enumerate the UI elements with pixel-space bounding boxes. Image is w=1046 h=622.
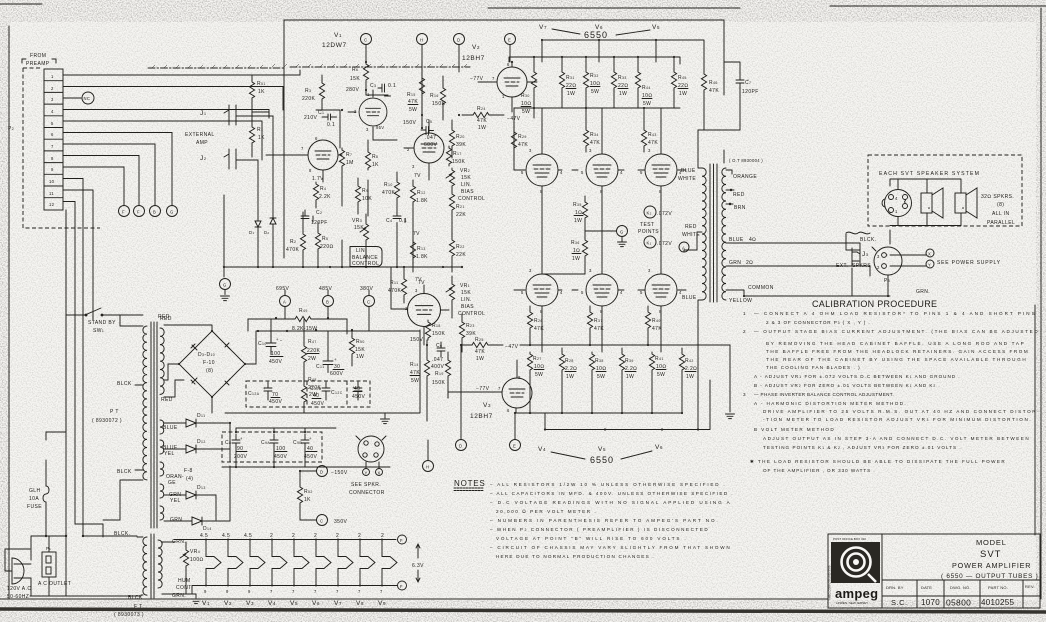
svg-text:−77V: −77V [470,76,484,82]
svg-text:V4: V4 [538,446,546,453]
svg-text:.047: .047 [432,357,443,363]
svg-text:05800: 05800 [946,598,971,608]
svg-text:7V: 7V [414,173,421,179]
svg-text:1K: 1K [304,497,311,503]
svg-text:9: 9 [51,167,54,172]
svg-text:470K: 470K [388,288,402,294]
svg-text:600V: 600V [424,142,438,148]
svg-text:8.2K-15W: 8.2K-15W [292,326,317,332]
svg-text:V3: V3 [246,600,254,607]
svg-text:6.3V: 6.3V [412,563,424,569]
svg-text:47K: 47K [594,326,604,332]
svg-text:(8): (8) [206,368,213,374]
svg-text:RED: RED [160,316,172,322]
svg-text:P T: P T [110,409,119,415]
svg-text:BRN: BRN [734,205,746,211]
svg-text:V1: V1 [334,32,342,39]
svg-text:1: 1 [367,92,370,97]
svg-text:10A: 10A [29,496,39,502]
svg-text:47K: 47K [534,326,544,332]
svg-text:1W: 1W [567,91,575,97]
svg-text:F T: F T [134,604,143,610]
svg-text:NC: NC [84,96,91,101]
svg-text:450V: 450V [304,454,318,460]
svg-text:ADJUST OUTPUT AS IN STEP: ADJUST OUTPUT AS IN STEP 3-A AND CONNECT… [763,436,1029,441]
svg-text:— CONNECT A 4 OHM LOAD RES: — CONNECT A 4 OHM LOAD RESISTOR* TO PINS… [754,311,1035,316]
svg-text:J3: J3 [862,251,869,258]
svg-text:C: C [320,519,323,524]
svg-text:470K: 470K [382,190,396,196]
svg-text:DRN. BY: DRN. BY [886,585,904,590]
svg-text:B: B [153,210,156,215]
svg-text:-TION METER TO LOAD RESIST: -TION METER TO LOAD RESISTOR ADJUST VR3 … [763,417,1031,422]
svg-text:10K: 10K [362,196,372,202]
svg-text:REV.: REV. [1025,584,1035,589]
svg-text:5W: 5W [591,89,599,95]
svg-text:1.8K: 1.8K [416,198,428,204]
svg-text:6550: 6550 [590,455,614,465]
svg-text:5: 5 [640,290,643,295]
svg-text:F-8: F-8 [184,468,193,474]
svg-text:STAND BY: STAND BY [88,320,116,326]
svg-text:+: + [263,386,266,391]
svg-text:WHITE: WHITE [678,176,696,182]
svg-text:47K: 47K [648,140,658,146]
svg-text:7: 7 [292,589,295,594]
svg-text:2.2K: 2.2K [319,194,331,200]
svg-text:470K: 470K [286,247,300,253]
svg-text:V5: V5 [598,446,606,453]
svg-text:9: 9 [248,589,251,594]
svg-text:RED: RED [161,397,173,403]
svg-text:BLUE: BLUE [163,425,178,431]
svg-text:120PF: 120PF [742,89,759,95]
svg-text:D: D [457,38,460,43]
svg-text:50-60HZ: 50-60HZ [7,594,29,600]
svg-text:H: H [426,465,429,470]
svg-text:SEE SPKR.: SEE SPKR. [351,482,381,488]
svg-text:GE: GE [168,480,176,486]
svg-text:✱ THE LOAD RESISTOR SHOULD: ✱ THE LOAD RESISTOR SHOULD BE ABLE TO DI… [750,459,1005,464]
svg-text:GLH: GLH [29,488,40,494]
svg-text:2: 2 [270,533,273,539]
svg-text:15K: 15K [354,225,364,231]
svg-text:+: + [309,436,312,441]
svg-text:2: 2 [336,533,339,539]
svg-text:6: 6 [507,408,510,413]
svg-text:J2: J2 [200,155,207,162]
svg-text:1W: 1W [478,125,486,131]
svg-text:V3: V3 [483,402,491,409]
svg-text:7V: 7V [413,231,420,237]
svg-text:22K: 22K [456,252,466,258]
svg-text:2: 2 [381,533,384,539]
svg-text:5W: 5W [657,372,665,378]
svg-text:1W: 1W [356,354,364,360]
svg-text:95V: 95V [376,125,384,130]
svg-text:5W: 5W [643,101,651,107]
svg-text:4.5: 4.5 [200,533,208,539]
svg-text:2Ω: 2Ω [746,260,753,266]
svg-text:( 8930073 ): ( 8930073 ) [114,612,144,618]
svg-text:2: 2 [51,86,54,91]
svg-text:J1: J1 [200,110,207,117]
svg-text:G: G [170,210,174,215]
svg-text:LIN.: LIN. [461,297,472,303]
svg-text:AMEG CORP (201) 925-3700: AMEG CORP (201) 925-3700 [828,565,832,600]
svg-text:YEL: YEL [164,451,175,457]
svg-text:5W: 5W [522,109,530,115]
svg-text:D2: D2 [264,230,269,235]
svg-text:3: 3 [529,268,532,273]
svg-text:BY REMOVING THE HEAD CABIN: BY REMOVING THE HEAD CABINET BAFFLE. USE… [766,341,1024,346]
svg-text:1M: 1M [346,160,354,166]
svg-text:YELLOW: YELLOW [729,298,752,304]
svg-text:120PF: 120PF [311,220,328,226]
svg-text:5W: 5W [597,374,605,380]
svg-text:V6: V6 [312,600,320,607]
svg-text:10: 10 [49,179,55,184]
svg-text:BIAS: BIAS [461,189,474,195]
svg-text:S.C.: S.C. [891,598,908,607]
svg-text:COMMON: COMMON [748,285,774,291]
svg-text:SEE POWER SUPPLY: SEE POWER SUPPLY [937,260,1001,266]
svg-text:BLUE: BLUE [681,168,696,174]
svg-text:+: + [276,337,279,342]
svg-text:485V: 485V [319,286,333,292]
svg-text:1W: 1W [572,256,580,262]
svg-text:B - ADJUST VR2 FOR ZERO ±.: B - ADJUST VR2 FOR ZERO ±.01 VOLTS BETWE… [754,383,940,388]
svg-text:1070: 1070 [921,598,940,607]
svg-text:7: 7 [336,589,339,594]
svg-text:7: 7 [301,146,304,151]
svg-text:F: F [400,538,403,543]
svg-text:380V: 380V [360,286,374,292]
svg-text:3: 3 [743,392,746,397]
svg-text:5: 5 [51,121,54,126]
svg-text:220K: 220K [302,96,316,102]
svg-text:X: X [928,252,931,257]
svg-text:8: 8 [600,309,603,314]
svg-text:6: 6 [507,62,510,67]
svg-text:7: 7 [51,144,54,149]
svg-text:GRN: GRN [170,517,182,523]
svg-text:– WHEN P2 CONNECTOR ( PREA: – WHEN P2 CONNECTOR ( PREAMPLIFIER ) IS … [490,527,708,532]
svg-text:Y: Y [928,263,931,268]
svg-text:HUM: HUM [178,578,191,584]
svg-text:4.5: 4.5 [244,533,252,539]
svg-text:THE REAR OF THE CABINET B: THE REAR OF THE CABINET BY USING THE SPA… [766,357,1026,362]
svg-text:V2: V2 [224,600,232,607]
svg-text:1: 1 [502,94,505,99]
svg-text:450V: 450V [269,359,283,365]
svg-text:47K: 47K [590,140,600,146]
svg-text:450V: 450V [269,399,283,405]
svg-text:V1: V1 [202,600,210,607]
svg-text:– NUMBERS IN PARENTHESIS RE: – NUMBERS IN PARENTHESIS REFER TO AMPEG'… [490,518,718,523]
svg-text:EXT.: EXT. [836,263,848,269]
svg-text:D: D [459,444,462,449]
svg-text:4: 4 [560,170,563,175]
svg-text:V2: V2 [472,44,480,51]
svg-text:V4: V4 [268,600,276,607]
svg-text:47K: 47K [652,326,662,332]
svg-text:(4): (4) [186,476,193,482]
svg-text:1K: 1K [258,89,265,95]
svg-text:3: 3 [589,268,592,273]
svg-text:4010255: 4010255 [981,598,1014,607]
svg-text:15K: 15K [461,175,471,181]
svg-text:WHITE: WHITE [682,232,700,238]
svg-text:39K: 39K [456,142,466,148]
svg-text:8: 8 [51,156,54,161]
svg-text:0.1: 0.1 [327,122,335,128]
svg-text:FROM: FROM [30,53,46,59]
svg-text:120V A.C: 120V A.C [7,586,31,592]
svg-text:2 & 3 OF CONNECTOR P3 ( X: 2 & 3 OF CONNECTOR P3 ( X , Y ) . [766,320,870,325]
svg-text:K1: K1 [647,241,652,246]
svg-text:POWER AMPLIFIER: POWER AMPLIFIER [952,561,1031,570]
svg-text:B: B [326,300,329,305]
svg-text:.072V: .072V [657,211,672,217]
svg-text:YEL: YEL [170,498,181,504]
svg-text:( O.T 8930004 ): ( O.T 8930004 ) [729,158,763,163]
svg-text:LIN.: LIN. [461,182,472,188]
svg-text:8: 8 [540,309,543,314]
svg-text:OF THE AMPLIFIER , OR 330: OF THE AMPLIFIER , OR 330 WATTS . [763,468,875,473]
svg-text:F-10: F-10 [203,360,215,366]
svg-text:V7: V7 [334,600,342,607]
svg-text:3: 3 [877,254,880,259]
svg-text:F: F [400,584,403,589]
svg-text:5: 5 [581,290,584,295]
svg-text:220Ω: 220Ω [320,244,334,250]
svg-text:600V: 600V [330,371,344,377]
svg-text:C: C [364,38,367,43]
svg-text:−77V: −77V [476,386,490,392]
svg-text:7: 7 [358,589,361,594]
svg-text:3: 3 [412,164,415,169]
svg-text:(8): (8) [997,202,1004,208]
svg-text:1.8K: 1.8K [416,254,428,260]
svg-text:3: 3 [415,288,418,293]
svg-text:7: 7 [314,589,317,594]
svg-text:SVT: SVT [980,549,1001,560]
svg-text:2: 2 [877,265,880,270]
svg-text:CONTROL: CONTROL [458,196,485,202]
svg-text:0.1: 0.1 [399,218,407,224]
svg-text:47K: 47K [475,349,485,355]
svg-text:GRN: GRN [729,260,741,266]
svg-text:0.1: 0.1 [388,83,396,89]
svg-text:150V: 150V [410,337,424,343]
svg-text:D1: D1 [249,230,254,235]
svg-text:E: E [513,444,516,449]
svg-text:G: G [223,283,227,288]
svg-text:— OUTPUT STAGE BIAS CURRENT: — OUTPUT STAGE BIAS CURRENT ADJUSTMENT. … [754,329,1038,334]
svg-text:150K: 150K [432,101,446,107]
svg-text:12DW7: 12DW7 [322,42,347,49]
svg-text:SPKRS: SPKRS [852,263,871,269]
svg-text:POST OFFICE BOX 310: POST OFFICE BOX 310 [833,537,866,541]
svg-text:4: 4 [620,290,623,295]
svg-text:A: A [283,300,286,305]
svg-text:FUSE: FUSE [27,504,42,510]
svg-text:6: 6 [51,132,54,137]
svg-text:2: 2 [405,306,408,311]
svg-text:DATE: DATE [921,585,932,590]
svg-text:5: 5 [521,170,524,175]
svg-text:BLCK: BLCK [117,381,132,387]
svg-text:DRIVE AMPLIFIER TO 25 VOLTS: DRIVE AMPLIFIER TO 25 VOLTS R.M.S. OUT A… [763,409,1039,414]
svg-text:4: 4 [51,109,54,114]
svg-text:( 6550 — OUTPUT TUBES ): ( 6550 — OUTPUT TUBES ) [941,573,1038,580]
svg-text:7: 7 [492,76,495,81]
svg-text:DWG. NO.: DWG. NO. [950,585,971,590]
svg-text:GRN.: GRN. [916,289,930,295]
svg-text:210V: 210V [304,115,318,121]
svg-text:22K: 22K [456,212,466,218]
svg-text:12: 12 [49,202,55,207]
svg-text:2: 2 [358,533,361,539]
svg-text:1W: 1W [626,374,634,380]
svg-text:4Ω: 4Ω [749,237,756,243]
svg-text:5: 5 [640,170,643,175]
svg-text:PARALLEL: PARALLEL [987,220,1015,226]
svg-text:12BH7: 12BH7 [462,55,485,62]
svg-text:C: C [367,300,370,305]
svg-text:PREAMP: PREAMP [26,61,50,67]
svg-text:350V: 350V [334,519,348,525]
svg-text:150K: 150K [452,159,466,165]
svg-text:5: 5 [581,170,584,175]
svg-text:POINTS: POINTS [638,229,659,235]
svg-text:ampeg: ampeg [835,586,878,601]
svg-text:V5: V5 [652,24,660,31]
svg-text:7: 7 [380,589,383,594]
svg-text:+: + [240,436,243,441]
svg-text:A - ADJUST VR1 FOR ±.072 VO: A - ADJUST VR1 FOR ±.072 VOLTS D.C BETWE… [754,374,960,379]
svg-text:ORANGE: ORANGE [733,174,757,180]
svg-text:V7: V7 [539,24,547,31]
svg-text:6: 6 [315,136,318,141]
svg-text:400V: 400V [431,364,445,370]
svg-text:TEST: TEST [640,222,654,228]
svg-text:Y: Y [365,471,368,476]
svg-text:V6: V6 [655,444,663,451]
svg-text:F: F [122,210,125,215]
svg-text:5: 5 [521,290,524,295]
svg-text:BLUE: BLUE [729,237,744,243]
svg-text:12BH7: 12BH7 [470,413,493,420]
svg-text:−150V: −150V [331,470,348,476]
svg-text:32Ω SPKRS.: 32Ω SPKRS. [981,194,1014,200]
svg-text:– ALL RESISTORS 1/2W 10 %: – ALL RESISTORS 1/2W 10 % UNLESS OTHERWI… [490,482,725,487]
svg-text:6550: 6550 [584,30,608,40]
svg-text:( 8930072 ): ( 8930072 ) [92,418,122,424]
svg-text:15K: 15K [350,76,360,82]
svg-text:B VOLT METER METHOD: B VOLT METER METHOD [754,427,834,432]
svg-text:1K: 1K [372,162,379,168]
svg-text:— PHASE INVERTER BALANCE CO: — PHASE INVERTER BALANCE CONTROL ADJUSTM… [754,392,894,397]
svg-text:AMP: AMP [196,140,208,146]
svg-text:RED: RED [685,224,697,230]
svg-text:150V: 150V [403,120,417,126]
svg-text:CALIBRATION PROCEDURE: CALIBRATION PROCEDURE [812,299,938,309]
svg-text:3: 3 [648,268,651,273]
svg-text:2W: 2W [308,356,316,362]
svg-text:RED: RED [733,192,745,198]
svg-text:5W: 5W [535,372,543,378]
svg-text:7: 7 [270,589,273,594]
svg-text:47K: 47K [518,142,528,148]
svg-text:450V: 450V [352,394,366,400]
svg-text:EXTERNAL: EXTERNAL [185,132,215,138]
svg-text:5W: 5W [409,107,417,113]
svg-text:BLUE: BLUE [682,295,697,301]
svg-text:V9: V9 [378,600,386,607]
svg-text:1W: 1W [686,374,694,380]
svg-text:1W: 1W [619,91,627,97]
svg-text:9: 9 [204,589,207,594]
svg-text:5W: 5W [411,378,419,384]
svg-text:K2: K2 [647,211,652,216]
svg-text:1.7V: 1.7V [312,176,324,182]
svg-text:– CIRCUIT OF CHASSIS MAY V: – CIRCUIT OF CHASSIS MAY VARY SLIGHTLY F… [490,545,730,550]
svg-text:– ALL CAPACITORS IN MFD. &: – ALL CAPACITORS IN MFD. & 400V. UNLESS … [490,491,733,496]
svg-text:3: 3 [51,97,54,102]
svg-text:E: E [508,38,511,43]
svg-text:4: 4 [895,196,898,201]
svg-text:2: 2 [743,329,746,334]
svg-text:G: G [620,230,624,235]
svg-text:8: 8 [518,375,521,380]
svg-text:PART NO.: PART NO. [988,585,1008,590]
svg-text:F: F [137,210,140,215]
svg-text:CONT: CONT [176,585,192,591]
svg-text:9: 9 [226,589,229,594]
svg-text:2: 2 [314,533,317,539]
svg-text:BLCK: BLCK [128,595,143,601]
svg-text:1: 1 [895,209,898,214]
svg-text:15K: 15K [355,347,365,353]
svg-text:2: 2 [354,109,357,114]
svg-text:4: 4 [620,170,623,175]
svg-text:150K: 150K [432,380,446,386]
svg-text:CONNECTOR: CONNECTOR [349,490,385,496]
svg-text:8: 8 [659,189,662,194]
svg-text:NOTES: NOTES [454,479,486,488]
svg-text:– D.C VOLTAGE READINGS WITH: – D.C VOLTAGE READINGS WITH NO SIGNAL AP… [490,500,731,505]
svg-text:BLCK.: BLCK. [860,237,876,243]
svg-text:100Ω: 100Ω [190,557,204,563]
svg-text:3: 3 [529,148,532,153]
svg-text:P1: P1 [46,546,51,551]
svg-text:1W: 1W [679,91,687,97]
svg-text:1W: 1W [566,374,574,380]
svg-text:V5: V5 [290,600,298,607]
svg-text:15K: 15K [461,290,471,296]
svg-text:THE COOLING FAN BLADES . ): THE COOLING FAN BLADES . ) [766,365,860,370]
svg-text:1K: 1K [258,135,265,141]
svg-text:3: 3 [366,127,369,132]
svg-text:BLCK: BLCK [117,469,132,475]
svg-text:3: 3 [589,148,592,153]
svg-text:1: 1 [51,74,54,79]
svg-text:HERE DUE TO NORMAL PRODUCT: HERE DUE TO NORMAL PRODUCTION CHANGES . [496,554,654,559]
svg-text:EACH SVT SPEAKER SYSTEM: EACH SVT SPEAKER SYSTEM [879,171,980,177]
svg-text:V8: V8 [356,600,364,607]
